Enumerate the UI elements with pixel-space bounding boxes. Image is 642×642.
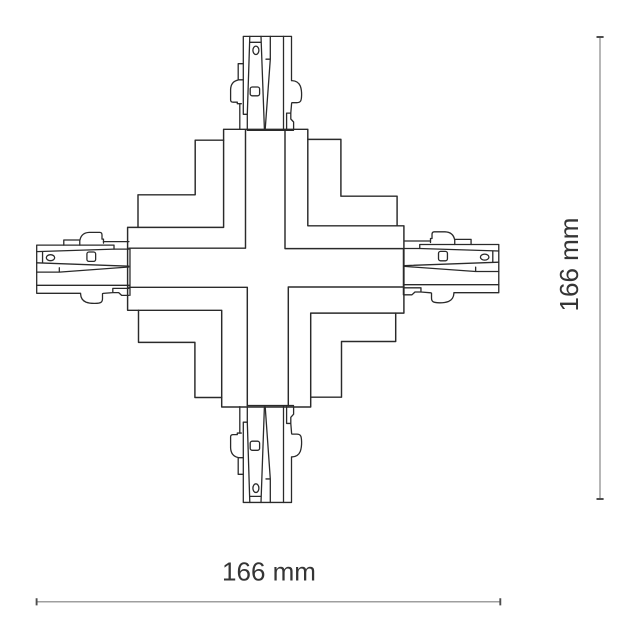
svg-text:166 mm: 166 mm <box>222 557 316 587</box>
svg-text:166 mm: 166 mm <box>554 218 584 312</box>
